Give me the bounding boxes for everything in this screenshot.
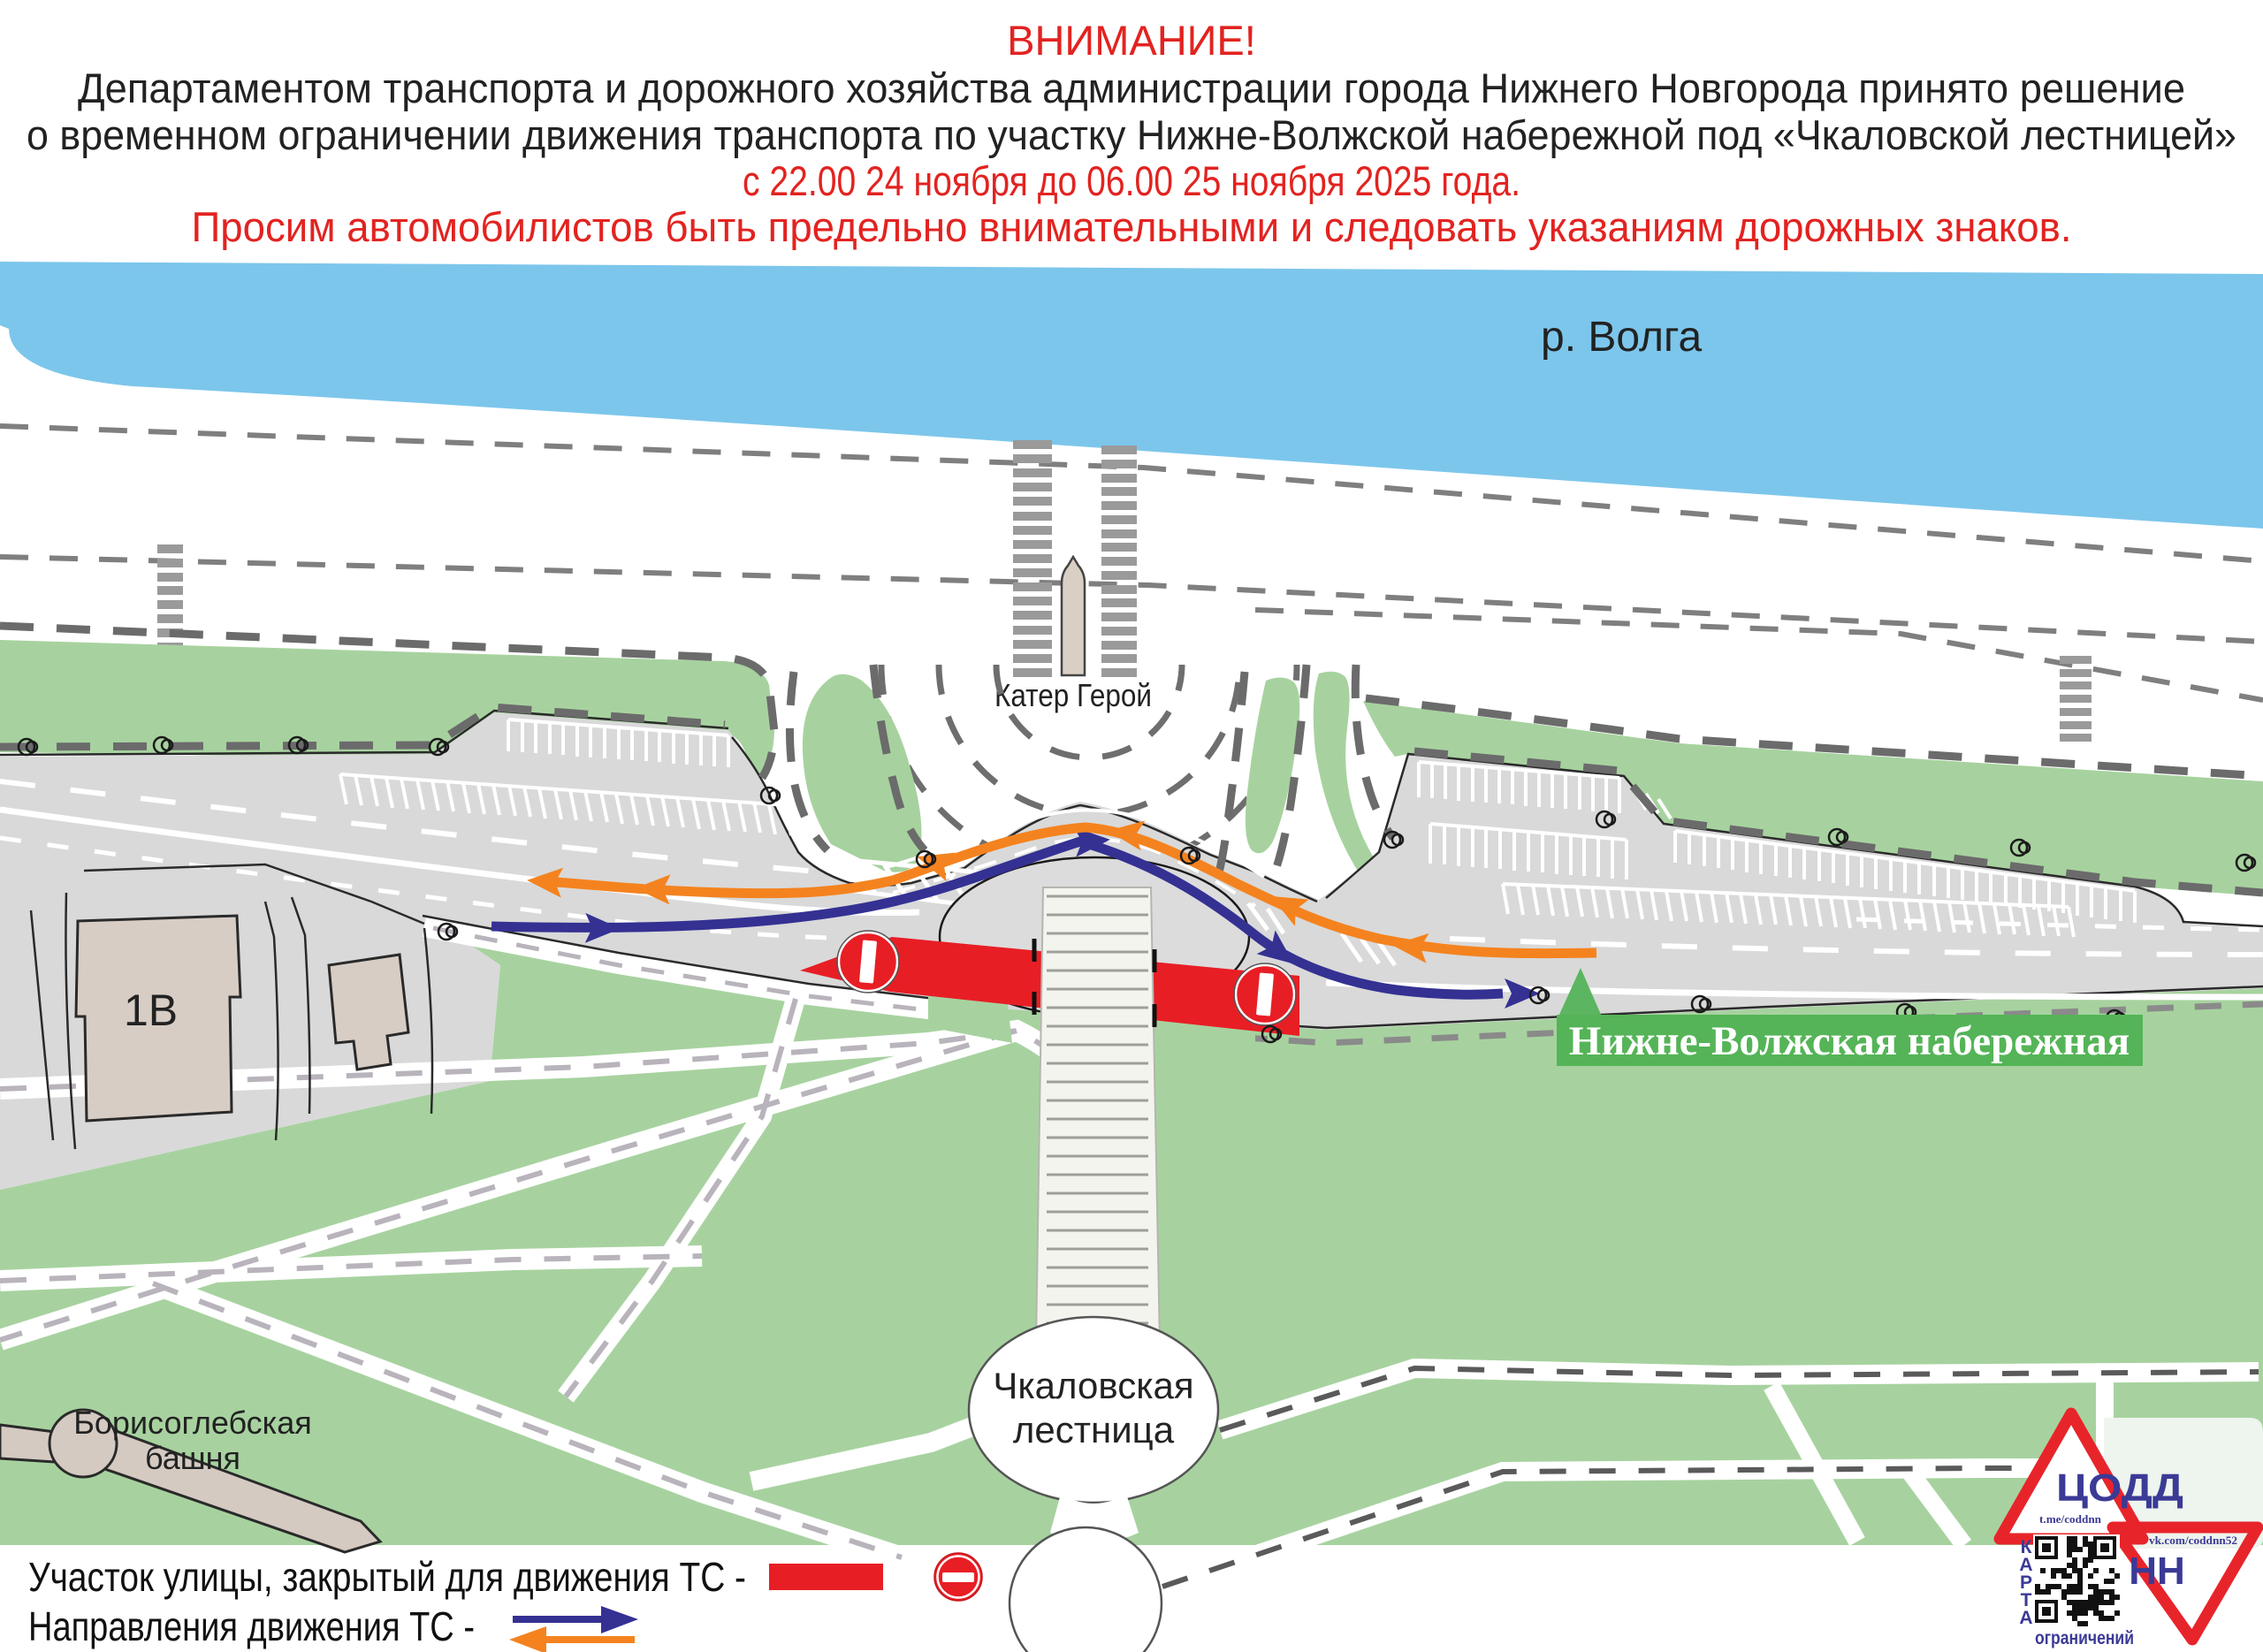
svg-text:Просим автомобилистов быть пре: Просим автомобилистов быть предельно вни… — [192, 203, 2072, 250]
svg-text:лестница: лестница — [1013, 1409, 1175, 1450]
svg-text:о временном ограничении движен: о временном ограничении движения транспо… — [27, 111, 2236, 158]
svg-text:ограничений: ограничений — [2035, 1628, 2134, 1648]
svg-text:vk.com/coddnn52: vk.com/coddnn52 — [2149, 1534, 2237, 1547]
svg-text:НН: НН — [2129, 1549, 2185, 1593]
svg-text:Участок улицы, закрытый для дв: Участок улицы, закрытый для движения ТС … — [28, 1554, 746, 1600]
svg-text:ЦОДД: ЦОДД — [2056, 1466, 2183, 1510]
svg-text:Нижне-Волжская набережная: Нижне-Волжская набережная — [1569, 1018, 2130, 1064]
svg-text:Борисоглебская: Борисоглебская — [73, 1405, 311, 1441]
svg-text:башня: башня — [145, 1440, 240, 1476]
svg-text:t.me/coddnn: t.me/coddnn — [2039, 1512, 2102, 1526]
svg-text:Департаментом транспорта и дор: Департаментом транспорта и дорожного хоз… — [78, 65, 2185, 111]
svg-text:А: А — [2019, 1608, 2032, 1628]
svg-text:Катер Герой: Катер Герой — [994, 677, 1152, 713]
svg-text:Направления движения ТС -: Направления движения ТС - — [28, 1603, 475, 1649]
svg-text:1В: 1В — [124, 986, 178, 1035]
svg-text:р. Волга: р. Волга — [1541, 314, 1702, 361]
svg-text:Чкаловская: Чкаловская — [993, 1365, 1193, 1406]
svg-text:ВНИМАНИЕ!: ВНИМАНИЕ! — [1007, 17, 1256, 64]
svg-text:с 22.00 24 ноября до 06.00 25: с 22.00 24 ноября до 06.00 25 ноября 202… — [743, 157, 1520, 204]
